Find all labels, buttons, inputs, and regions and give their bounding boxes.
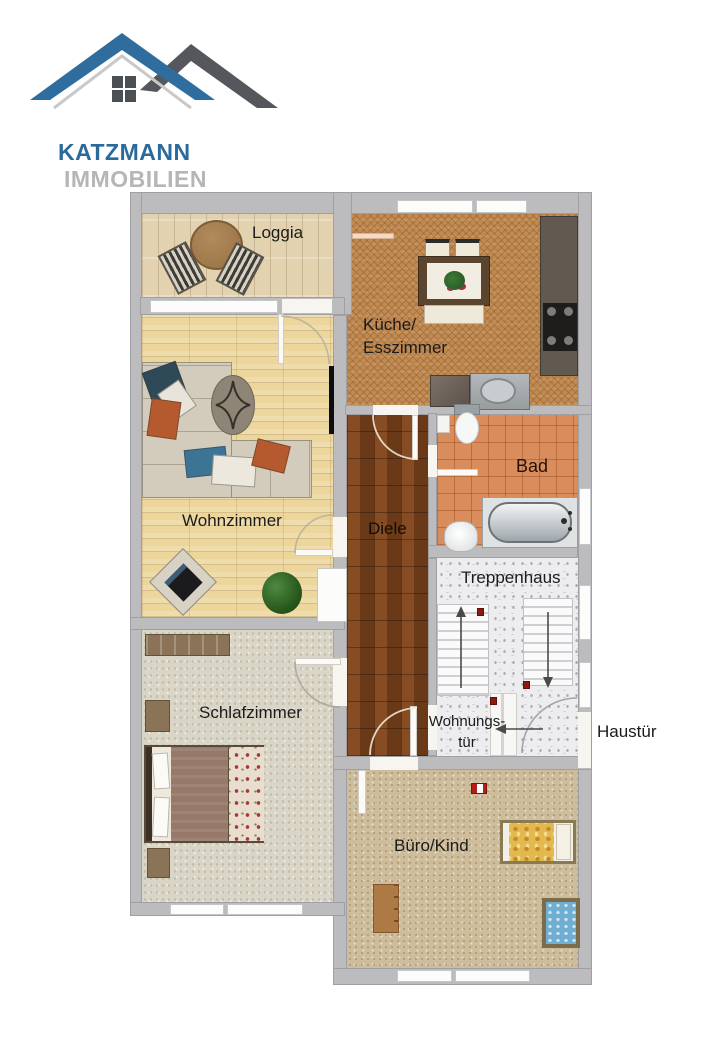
- apartment-door-label-line2: tür: [458, 734, 476, 751]
- bath-door-opening: [428, 445, 437, 477]
- bath-door-leaf: [437, 469, 478, 476]
- dishwasher: [430, 375, 470, 407]
- bath-sink: [444, 521, 478, 552]
- wardrobe: [145, 634, 230, 656]
- bathtub-faucet: [561, 518, 567, 524]
- logo-brand: KATZMANN: [58, 139, 191, 165]
- office-label: Büro/Kind: [394, 835, 469, 856]
- kitchen-door-leaf: [412, 415, 418, 460]
- marker-dot: [477, 608, 484, 616]
- nightstand: [147, 848, 170, 878]
- stairwell-window-1: [579, 585, 591, 640]
- dining-chair-2: [455, 239, 480, 257]
- bedroom-window-2: [227, 904, 303, 915]
- window-icon: [110, 74, 138, 104]
- office-bed-blanket: [509, 823, 554, 861]
- logo-wordmark: KATZMANN IMMOBILIEN: [58, 139, 298, 193]
- stairwell-window-2: [579, 662, 591, 708]
- table-plant: [444, 271, 465, 290]
- coffee-table: [211, 375, 255, 435]
- company-logo: KATZMANN IMMOBILIEN: [28, 28, 298, 148]
- bed-pillow-1: [152, 752, 170, 789]
- office-crib: [542, 898, 580, 948]
- livingroom-door-opening: [333, 517, 347, 557]
- kitchen-door-opening: [373, 405, 418, 415]
- stairwell-label: Treppenhaus: [461, 567, 561, 588]
- office-door-leaf: [358, 770, 366, 814]
- stair-flight-down: [523, 598, 573, 686]
- office-door-opening: [370, 757, 418, 770]
- kitchen-label-line2: Esszimmer: [363, 338, 447, 357]
- kitchen-radiator: [352, 233, 394, 239]
- bedroom-label: Schlafzimmer: [199, 702, 302, 723]
- balcony-door-opening: [282, 299, 332, 313]
- office-window-2: [455, 970, 530, 982]
- hallway-floor: [347, 415, 428, 756]
- bedroom-door-leaf: [295, 658, 341, 665]
- bed-blanket: [171, 747, 228, 841]
- balcony-door-leaf: [278, 314, 284, 364]
- bed-headboard: [146, 747, 152, 841]
- front-door-label: Haustür: [597, 721, 657, 742]
- wall-hallway-bath: [428, 413, 437, 548]
- kitchen-window-1: [397, 200, 473, 213]
- office-bed-pillow: [556, 824, 571, 860]
- kitchen-counter: [540, 216, 578, 376]
- marker-dot: [490, 697, 497, 705]
- floorplan-page: KATZMANN IMMOBILIEN: [0, 0, 720, 1040]
- livingroom-label: Wohnzimmer: [182, 510, 282, 531]
- stair-flight-up: [437, 604, 489, 696]
- hallway-label: Diele: [368, 518, 407, 539]
- front-door-opening: [578, 712, 591, 768]
- bed-pillow-2: [152, 797, 170, 838]
- bedroom-window-1: [170, 904, 224, 915]
- bathtub-basin: [488, 502, 572, 543]
- bath-cabinet: [437, 415, 450, 433]
- kitchen-window-2: [476, 200, 527, 213]
- stove-burner: [547, 307, 556, 316]
- sofa-pillow-orange: [147, 398, 182, 440]
- bed-blanket-floral: [228, 747, 264, 841]
- loggia-label: Loggia: [252, 222, 303, 243]
- kitchen-sink-basin: [480, 378, 516, 404]
- livingroom-wall-niche: [317, 568, 347, 622]
- toilet-bowl: [455, 412, 479, 444]
- hallway-bottom-door-leaf: [410, 706, 417, 756]
- office-window-1: [397, 970, 452, 982]
- apartment-door-label-line1: Wohnungs-: [429, 713, 505, 730]
- sofa-pillow-white-2: [211, 455, 257, 488]
- kitchen-label-line1: Küche/: [363, 315, 416, 334]
- tv-panel: [329, 366, 334, 434]
- stove-burner: [564, 307, 573, 316]
- bathroom-label: Bad: [516, 456, 548, 477]
- logo-suffix: IMMOBILIEN: [64, 166, 207, 192]
- livingroom-plant: [262, 572, 302, 614]
- wall-livingroom-bedroom: [130, 617, 345, 630]
- marker-dot: [523, 681, 530, 689]
- office-radiator-mark: [471, 783, 487, 794]
- apartment-door-label: Wohnungs- tür: [427, 711, 507, 753]
- house-roof-icon: [28, 28, 288, 118]
- bedroom-door-opening: [333, 658, 347, 706]
- kitchen-label: Küche/ Esszimmer: [363, 313, 447, 359]
- livingroom-door-leaf: [295, 549, 333, 556]
- stove-burner: [564, 336, 573, 345]
- dining-chair-1: [425, 239, 450, 257]
- bath-window: [579, 488, 591, 545]
- dresser: [145, 700, 170, 732]
- stove-burner: [547, 336, 556, 345]
- loggia-window: [150, 300, 278, 313]
- office-desk: [373, 884, 399, 933]
- wall-livingroom-hallway: [333, 315, 347, 985]
